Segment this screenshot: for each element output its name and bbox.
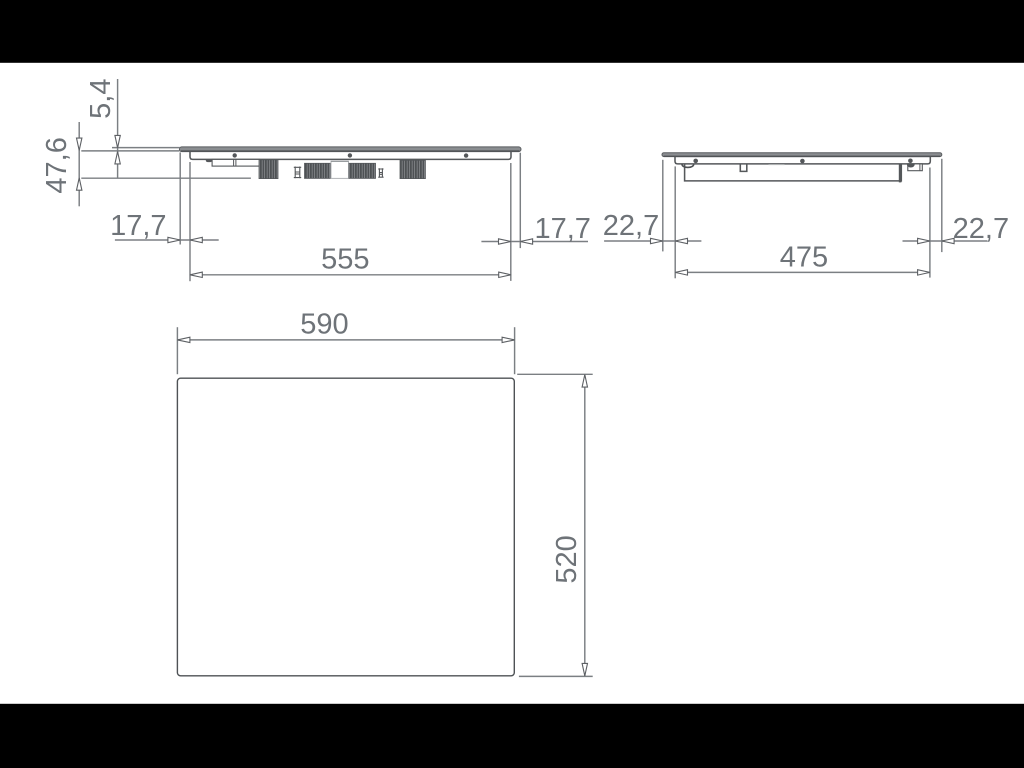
svg-text:5,4: 5,4 xyxy=(85,79,117,119)
svg-text:475: 475 xyxy=(780,241,828,273)
svg-text:520: 520 xyxy=(551,535,583,583)
svg-text:17,7: 17,7 xyxy=(110,210,166,242)
svg-text:22,7: 22,7 xyxy=(603,210,659,242)
svg-text:17,7: 17,7 xyxy=(534,213,590,245)
svg-text:47,6: 47,6 xyxy=(41,137,73,193)
svg-text:555: 555 xyxy=(321,244,369,276)
svg-text:22,7: 22,7 xyxy=(953,213,1009,245)
svg-text:590: 590 xyxy=(300,308,348,340)
